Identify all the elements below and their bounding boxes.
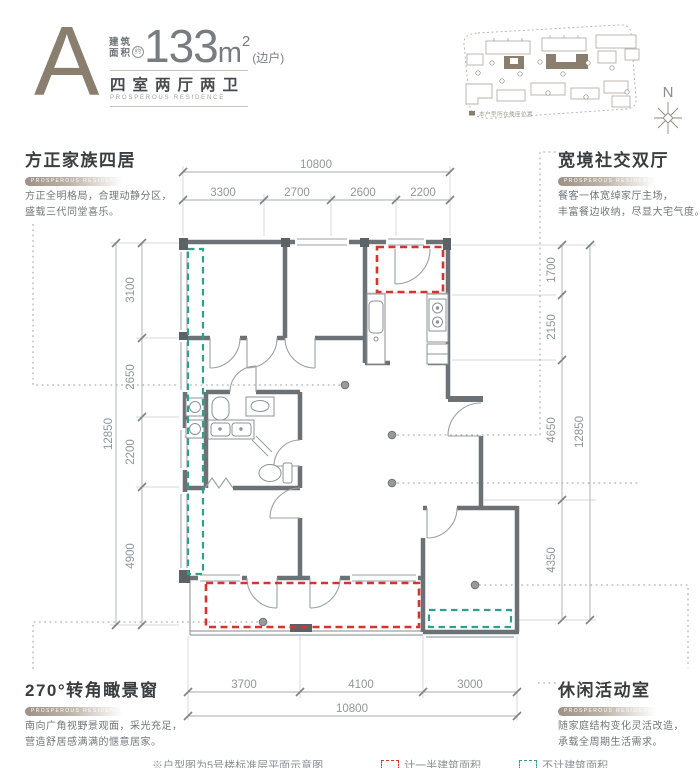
feature-text-line: 营造舒居感满满的惬意居家。 [25,738,215,748]
dim-top-seg2: 2700 [284,187,310,199]
feature-text-line: 方正全明格局，合理动静分区， [25,192,215,202]
dim-bottom-total: 10800 [336,703,368,715]
dim-right-seg1: 1700 [546,257,558,283]
area-label: 建筑 面积 [109,37,132,59]
layout-name: 四室两厅两卫 [110,73,245,95]
red-zone-balcony [206,583,419,627]
dim-right-seg4: 4350 [546,547,558,573]
feature-bottom-right: 休闲活动室 PROSPEROUS RESIDENCE 随家庭结构变化灵活改造， … [558,676,700,748]
feature-tag: PROSPEROUS RESIDENCE [558,177,656,186]
feature-title: 休闲活动室 [558,676,700,701]
folding-door [205,478,233,488]
area-note: (边户) [252,49,284,66]
area-label-line2: 面积 [109,48,132,59]
building-area: 133m2(边户) [144,22,284,70]
legend-teal-label: 不计建筑面积 [542,757,608,768]
feature-tag: PROSPEROUS RESIDENCE [25,177,123,186]
dim-top-seg4: 2200 [410,187,436,199]
area-superscript: 2 [242,33,250,50]
feature-tag-text: PROSPEROUS RESIDENCE [31,178,123,184]
floorplan-drawing: 本户型所在楼座位置 N [0,0,700,768]
feature-tag: PROSPEROUS RESIDENCE [25,707,123,716]
toilet [259,465,281,482]
shower-door [252,436,272,456]
layout-subtitle-en: PROSPEROUS RESIDENCE [110,95,225,101]
feature-top-left: 方正家族四居 PROSPEROUS RESIDENCE 方正全明格局，合理动静分… [25,146,215,218]
legend-red-box-icon [381,760,399,768]
red-zone-entry [377,247,443,292]
compass: N [654,84,682,134]
approx-circle-mark: 约 [132,46,144,58]
kitchen-sink [369,301,383,333]
site-plan-legend-swatch [469,111,475,116]
teal-zone-leisure [429,610,511,627]
main-entry-door [448,403,481,436]
dim-left-total: 12850 [103,418,115,450]
legend-red-label: 计一半建筑面积 [404,757,481,768]
header-divider-bottom [110,106,248,107]
feature-top-right: 宽境社交双厅 PROSPEROUS RESIDENCE 餐客一体宽绰家厅主场， … [558,146,700,218]
feature-tag-text: PROSPEROUS RESIDENCE [31,708,123,714]
legend-teal-box-icon [519,760,537,768]
feature-tag: PROSPEROUS RESIDENCE [558,707,656,716]
dim-right-total: 12850 [574,416,586,448]
dim-right-seg3: 4650 [546,417,558,443]
dim-bottom-seg2: 4100 [348,679,374,691]
feature-text-line: 随家庭结构变化灵活改造， [558,722,700,732]
dim-right-seg2: 2150 [546,314,558,340]
dim-left-seg2: 2650 [125,364,137,390]
dim-bottom-seg1: 3700 [231,679,257,691]
feature-title: 270°转角瞰景窗 [25,676,215,701]
dim-left-seg1: 3100 [125,277,137,303]
water-heater [212,397,229,420]
feature-text-line: 承载全周期生活需求。 [558,738,700,748]
site-plan-highlighted-buildings [504,54,588,69]
footnote-legend: ※户型图为5号楼标准层平面示意图 计一半建筑面积 不计建筑面积 [152,757,608,768]
unit-type-letter: A [34,12,99,110]
dim-left-seg3: 2200 [125,439,137,465]
area-value: 133 [144,22,218,70]
feature-bottom-left: 270°转角瞰景窗 PROSPEROUS RESIDENCE 南向广角视野景观面… [25,676,215,748]
footnote-note: ※户型图为5号楼标准层平面示意图 [152,757,323,768]
floorplan-page: 本户型所在楼座位置 N [0,0,700,768]
dim-bottom-seg3: 3000 [457,679,483,691]
dim-left-seg4: 4900 [125,543,137,569]
site-plan-legend-label: 本户型所在楼座位置 [479,110,533,118]
callout-dots [259,381,479,626]
feature-title: 宽境社交双厅 [558,146,700,171]
feature-text-line: 盛载三代同堂喜乐。 [25,208,215,218]
compass-north-label: N [663,84,674,101]
feature-text-line: 南向广角视野景观面，采光充足， [25,722,215,732]
area-unit: m [218,37,242,70]
dim-top-total: 10800 [300,159,332,171]
feature-text-line: 丰富餐边收纳，尽显大宅气度。 [558,208,700,218]
fixtures [186,293,448,483]
feature-tag-text: PROSPEROUS RESIDENCE [564,178,656,184]
feature-text-line: 餐客一体宽绰家厅主场， [558,192,700,202]
area-label-line1: 建筑 [109,37,132,48]
site-plan-buildings [466,35,639,107]
dim-top-seg3: 2600 [350,187,376,199]
header-divider-top [110,70,248,71]
feature-tag-text: PROSPEROUS RESIDENCE [564,708,656,714]
site-plan: 本户型所在楼座位置 [464,25,639,118]
feature-title: 方正家族四居 [25,146,215,171]
